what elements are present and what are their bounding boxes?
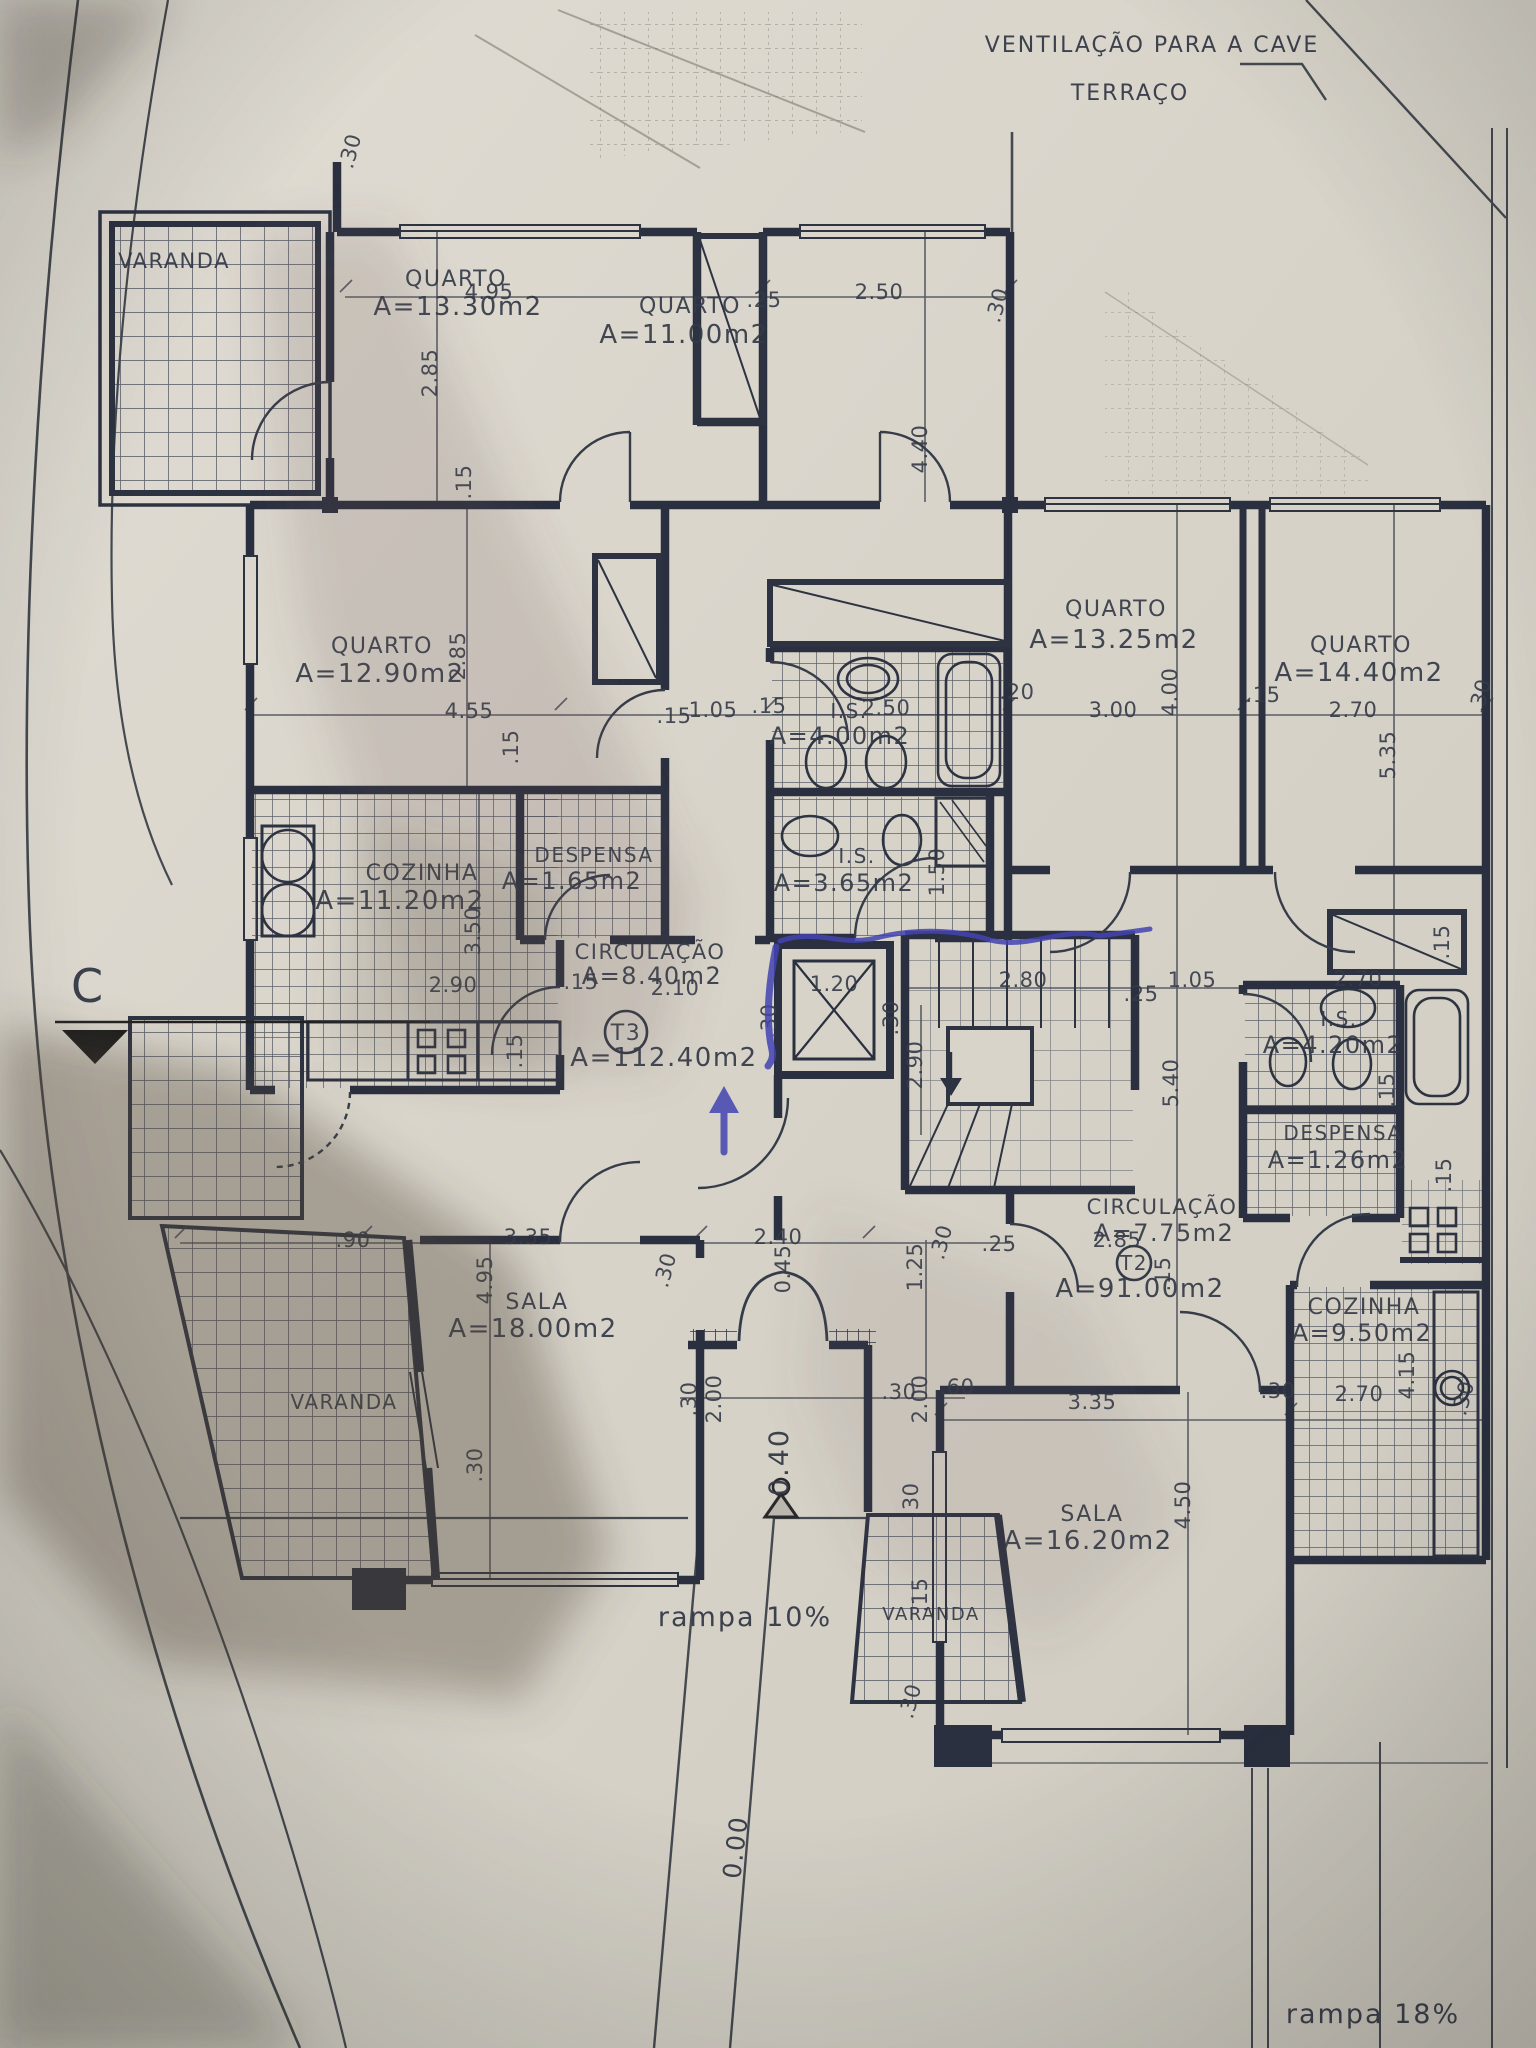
floor-plan-photo: VENTILAÇÃO PARA A CAVETERRAÇOrampa 10%ra…: [0, 0, 1536, 2048]
floor-plan-svg: VENTILAÇÃO PARA A CAVETERRAÇOrampa 10%ra…: [0, 0, 1536, 2048]
vignette: [0, 0, 1536, 2048]
